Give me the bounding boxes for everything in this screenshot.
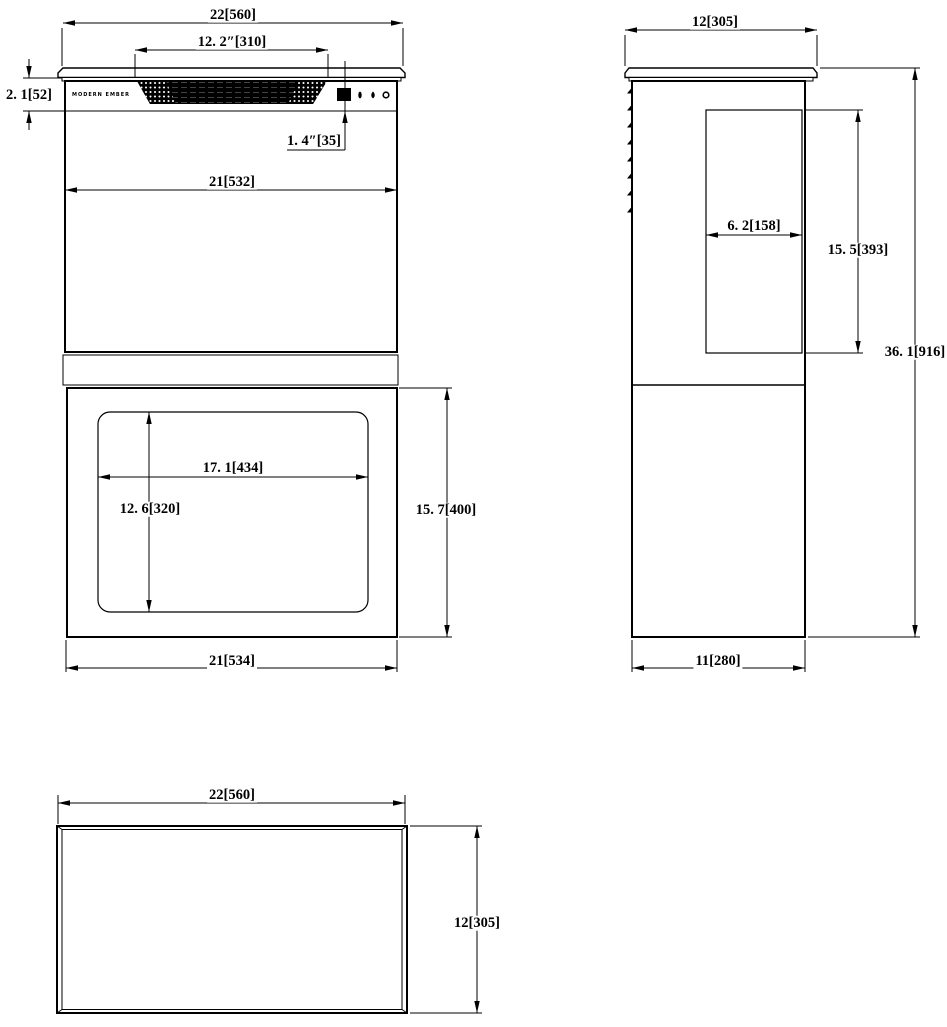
heater-grille — [137, 81, 327, 104]
front-upper-body-width-label: 21[532] — [207, 175, 257, 190]
front-lower-box-width-label: 21[534] — [207, 654, 257, 669]
power-ring-icon — [383, 92, 389, 98]
front-lower-box-height-label: 15. 7[400] — [414, 503, 478, 518]
front-top-cap — [58, 68, 405, 78]
grille-louver-pattern — [166, 81, 299, 104]
flame-dot-icon — [358, 92, 361, 99]
side-rear-box-height-label: 15. 5[393] — [826, 243, 890, 258]
bottom-outer-frame — [57, 826, 407, 1013]
front-separator-band — [63, 355, 398, 385]
front-overall-width-label: 22[560] — [208, 8, 258, 23]
front-display-width-label: 1. 4″[35] — [285, 134, 343, 149]
front-window-height-label: 12. 6[320] — [118, 502, 182, 517]
bottom-width-label: 22[560] — [207, 788, 257, 803]
side-overall-height-label: 36. 1[916] — [883, 345, 947, 360]
side-bottom-depth-label: 11[280] — [693, 654, 742, 669]
side-top-cap — [625, 68, 817, 78]
technical-drawing-sheet: MODERN EMBER 22[560] 12. 2″[310] 2. 1[52… — [0, 0, 947, 1027]
bottom-depth-label: 12[305] — [452, 916, 502, 931]
mounting-hooks — [627, 88, 632, 213]
side-rear-box-depth-label: 6. 2[158] — [725, 219, 782, 234]
front-upper-body — [65, 81, 397, 352]
side-view — [625, 68, 817, 637]
front-grille-width-label: 12. 2″[310] — [196, 35, 268, 50]
front-window-width-label: 17. 1[434] — [201, 461, 265, 476]
side-top-depth-label: 12[305] — [690, 15, 740, 30]
brand-label: MODERN EMBER — [72, 92, 130, 98]
front-view — [58, 68, 405, 637]
bottom-view — [57, 826, 407, 1013]
front-top-panel-height-label: 2. 1[52] — [4, 88, 54, 103]
display-screen-icon — [337, 88, 351, 101]
